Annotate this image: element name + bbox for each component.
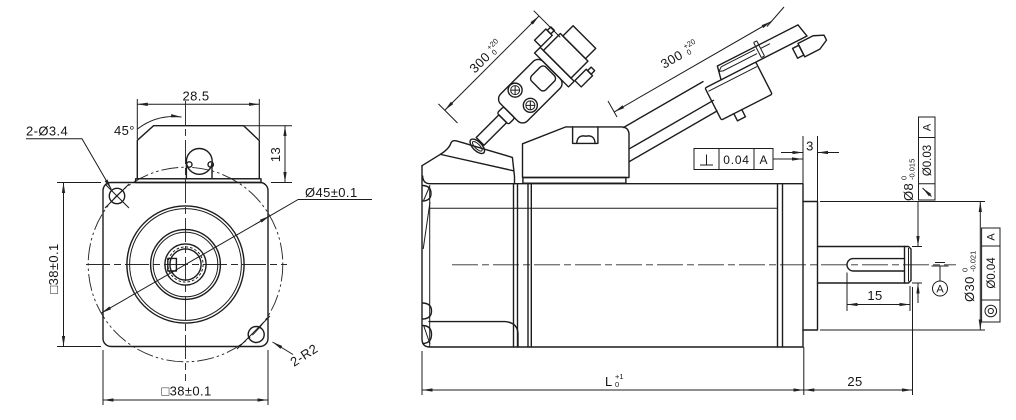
svg-text:3: 3 — [806, 139, 814, 154]
svg-text:15: 15 — [867, 288, 882, 303]
svg-text:Ø30: Ø30 — [962, 276, 977, 302]
svg-text:□38±0.1: □38±0.1 — [161, 384, 211, 399]
svg-text:A: A — [759, 153, 767, 167]
svg-text:A: A — [986, 233, 998, 241]
svg-text:2-Ø3.4: 2-Ø3.4 — [26, 124, 68, 139]
svg-text:0.04: 0.04 — [723, 153, 750, 167]
svg-text:Ø0.03: Ø0.03 — [922, 145, 934, 176]
svg-text:-0.021: -0.021 — [969, 251, 978, 272]
svg-text:A: A — [922, 123, 934, 131]
svg-text:25: 25 — [847, 374, 862, 389]
svg-text:Ø8: Ø8 — [901, 183, 916, 201]
svg-text:□38±0.1: □38±0.1 — [46, 243, 61, 293]
svg-text:Ø45±0.1: Ø45±0.1 — [305, 185, 358, 200]
svg-text:13: 13 — [268, 147, 283, 162]
svg-text:A: A — [936, 284, 944, 296]
svg-text:28.5: 28.5 — [183, 89, 210, 104]
svg-text:-0.015: -0.015 — [908, 159, 917, 180]
svg-text:45°: 45° — [114, 123, 135, 138]
svg-text:Ø0.04: Ø0.04 — [986, 257, 998, 289]
svg-text:0: 0 — [615, 380, 619, 389]
svg-text:L: L — [605, 374, 613, 389]
